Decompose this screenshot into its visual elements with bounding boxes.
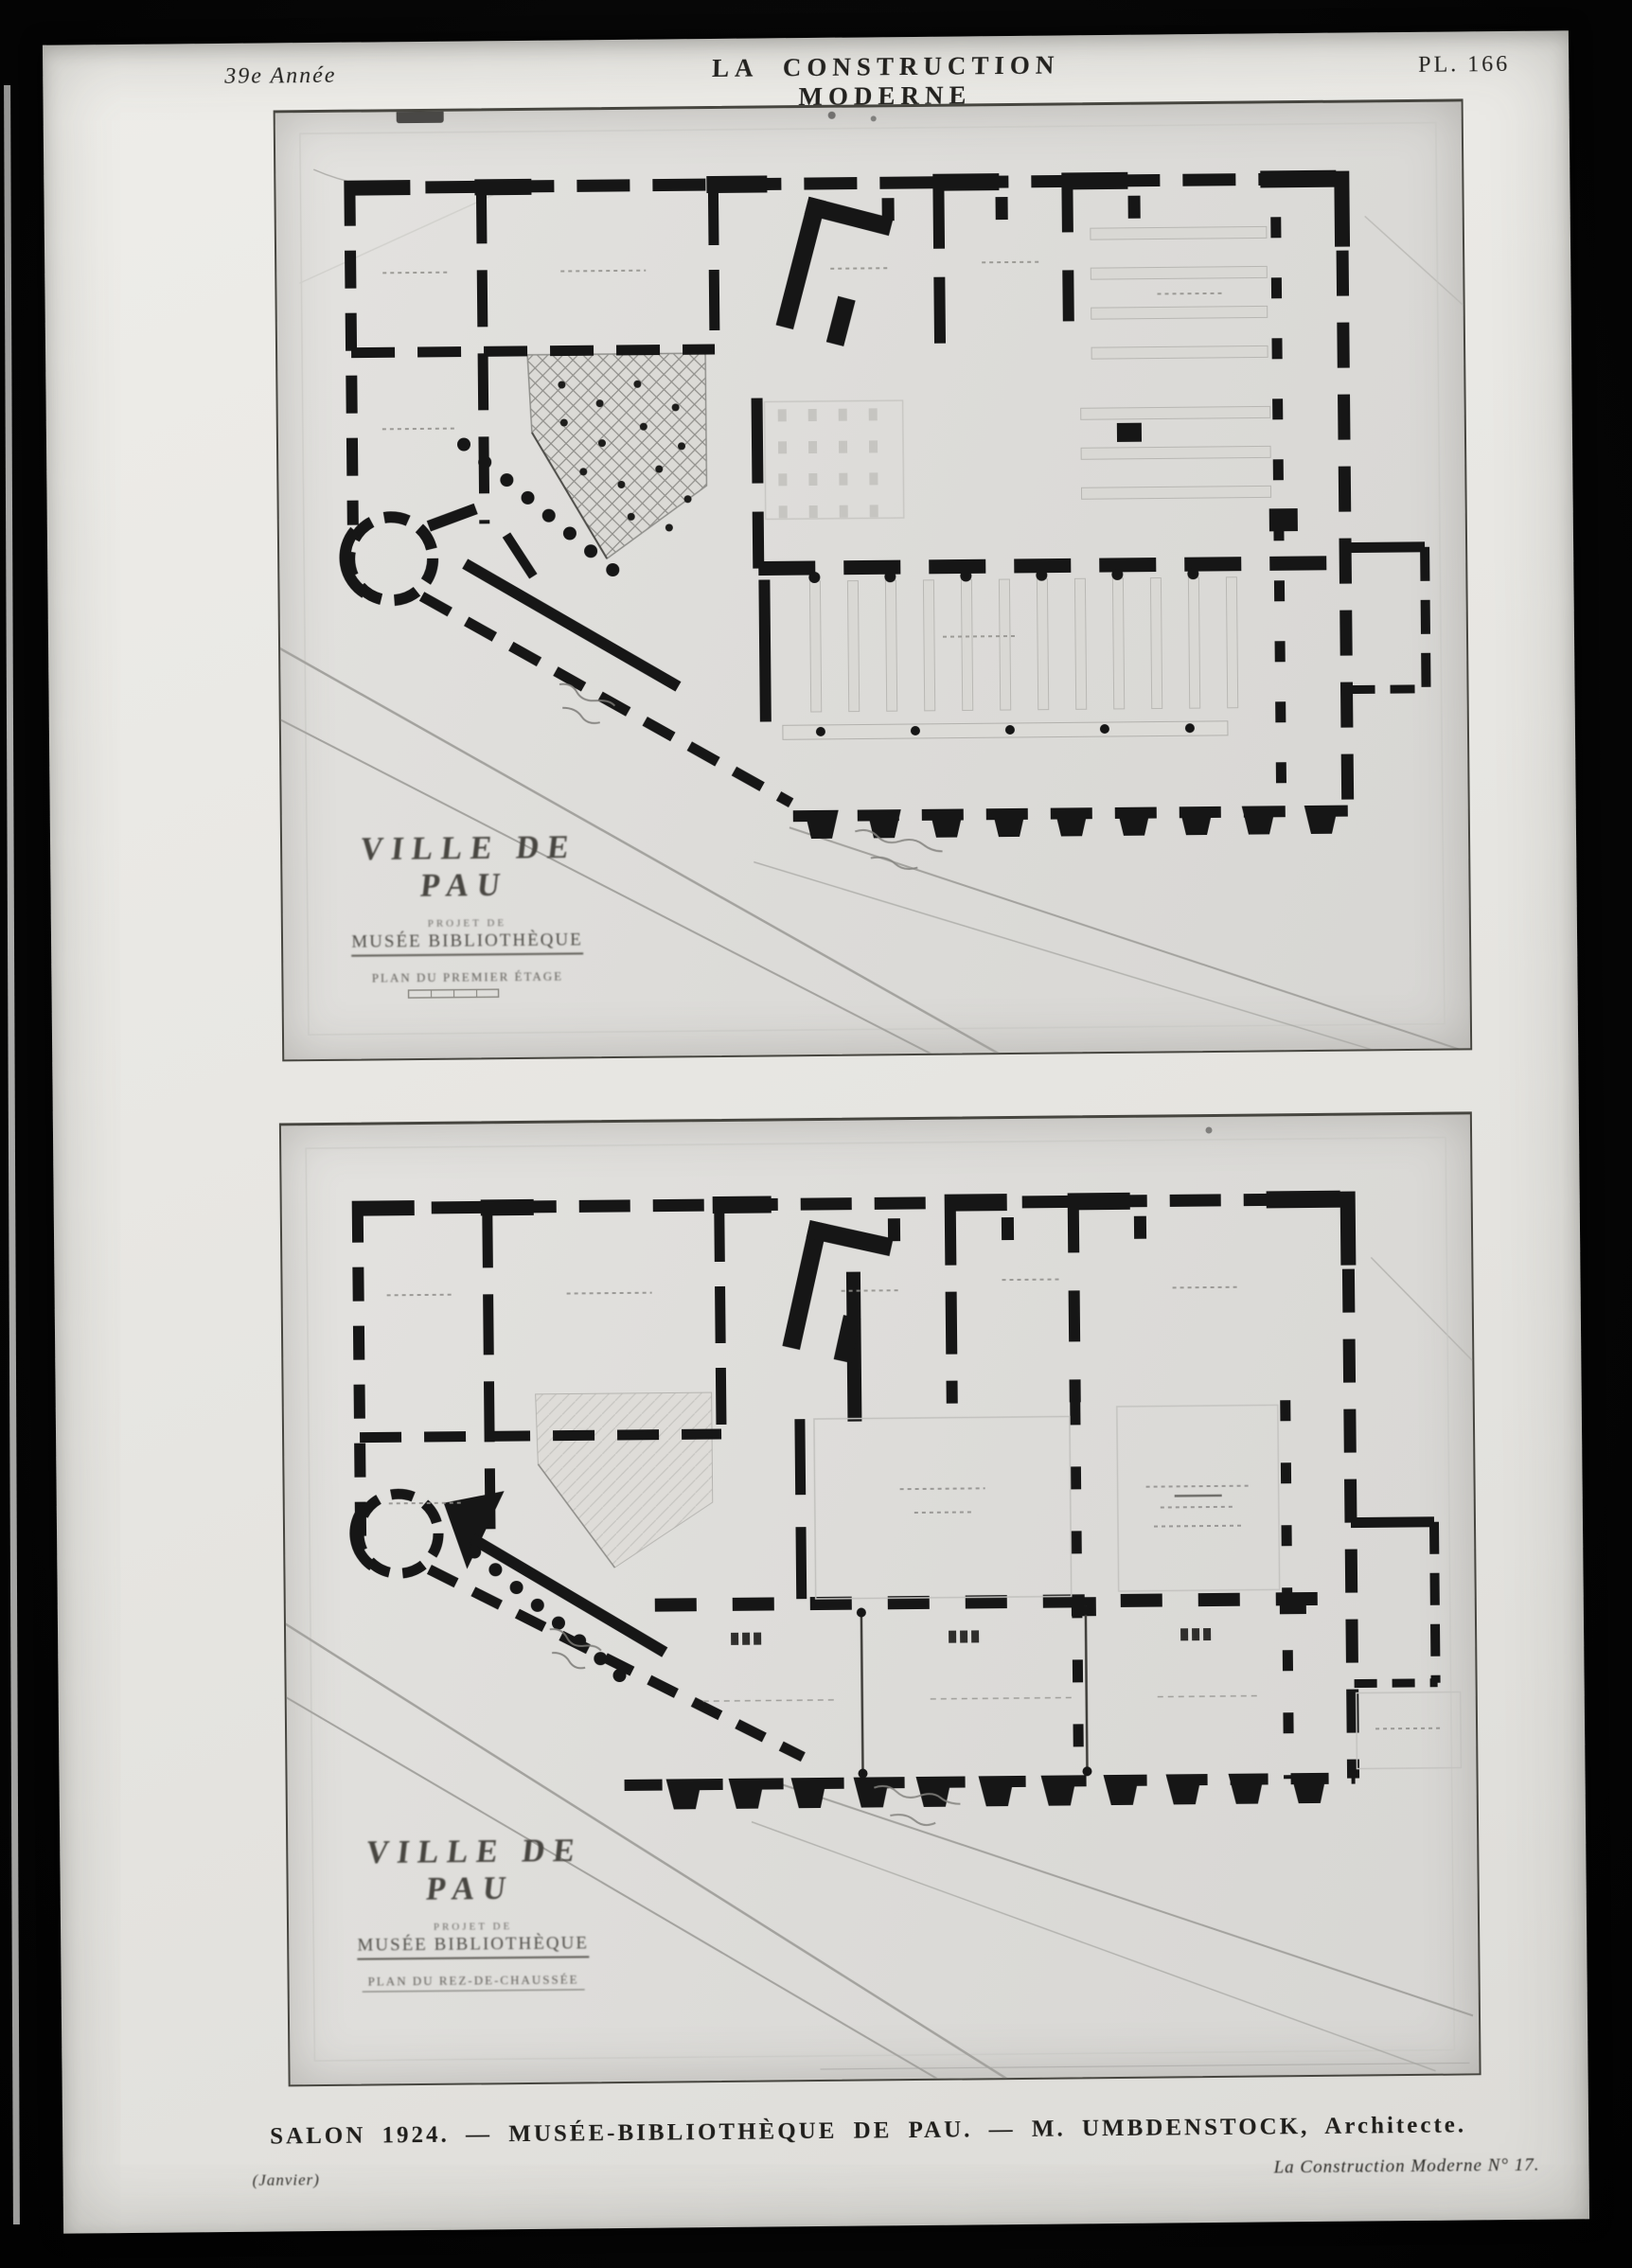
floor-plan-drawing-lower xyxy=(281,1114,1480,2084)
photo-blemishes xyxy=(1205,1125,1472,1363)
scanner-edge-artifact xyxy=(4,85,20,2224)
plate-caption: SALON 1924. — MUSÉE-BIBLIOTHÈQUE DE PAU.… xyxy=(176,2112,1560,2152)
diagonal-wing xyxy=(421,532,791,806)
caption-issue: La Construction Moderne N° 17. xyxy=(1274,2155,1540,2179)
column-grid-room xyxy=(765,400,904,519)
bookstack-shelves-right xyxy=(1079,226,1271,499)
floor-plan-drawing-upper xyxy=(275,101,1471,1059)
light-hatched-court xyxy=(536,1392,714,1568)
wing-script xyxy=(540,1621,601,1674)
journal-plate: 39e Année LA CONSTRUCTION MODERNE PL. 16… xyxy=(43,30,1589,2233)
caption-month: (Janvier) xyxy=(253,2171,321,2190)
scale-bar xyxy=(409,989,499,998)
avenue-lines xyxy=(281,1606,1474,2084)
grand-stair-block xyxy=(782,1220,894,1366)
plate-number: PL. 166 xyxy=(1418,52,1510,79)
hatched-courtyard xyxy=(527,353,707,559)
floor-plan-photo-upper: VILLE DE PAU PROJET DE MUSÉE BIBLIOTHÈQU… xyxy=(274,98,1473,1061)
journal-year: 39e Année xyxy=(224,63,336,90)
floor-plan-photo-lower: VILLE DE PAU PROJET DE MUSÉE BIBLIOTHÈQU… xyxy=(279,1111,1481,2086)
perimeter-and-interior-walls xyxy=(358,1198,1439,1788)
reading-room-stacks xyxy=(781,568,1238,740)
courtyard-room xyxy=(814,1404,1462,1775)
facade-buttress-piers xyxy=(805,806,1339,839)
rotunda xyxy=(345,508,477,600)
diagonal-wing xyxy=(429,1535,803,1761)
avenue-lines xyxy=(275,631,1463,1059)
grand-stair-block xyxy=(775,197,894,350)
